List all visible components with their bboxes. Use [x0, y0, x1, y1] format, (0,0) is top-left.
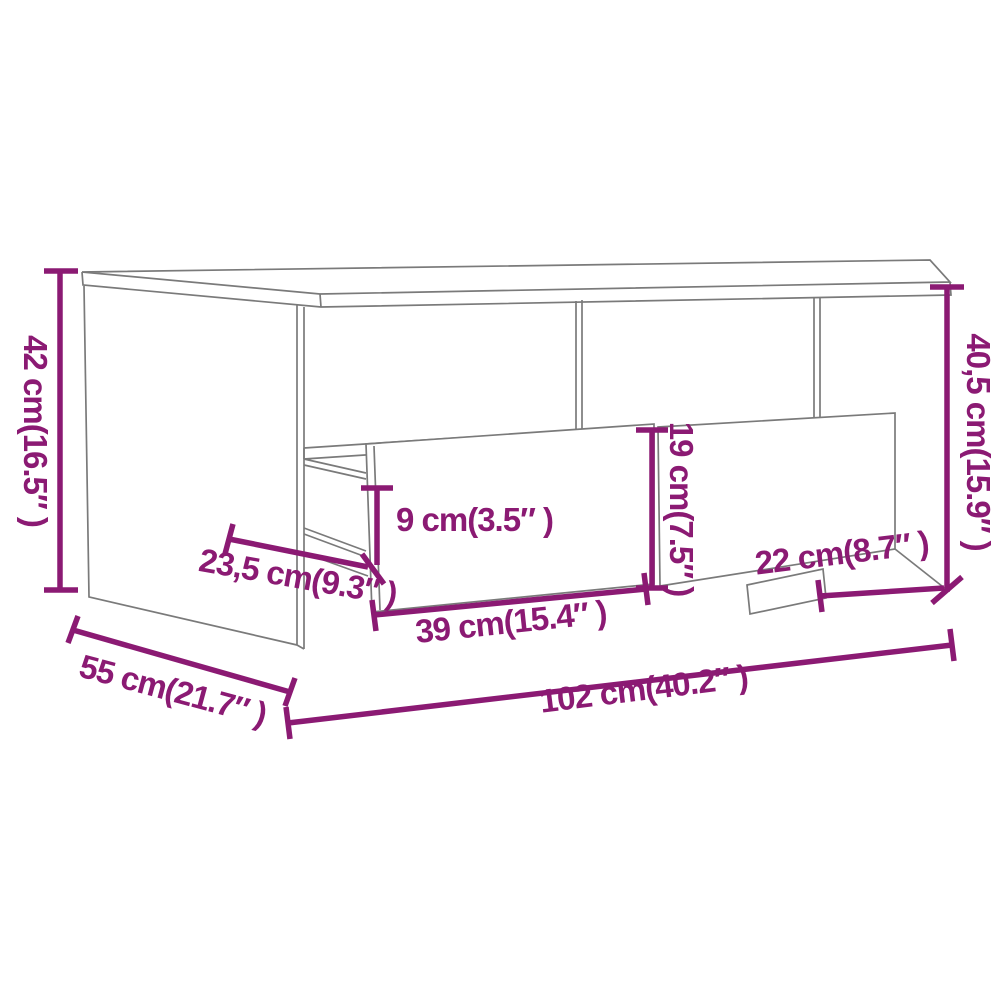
dim-overall-width: 102 cm(40.2″ )	[286, 629, 954, 739]
dim-overall-width-label: 102 cm(40.2″ )	[538, 657, 750, 719]
dim-drawer-opening-height-label: 9 cm(3.5″ )	[396, 501, 553, 538]
dim-overall-height-label: 42 cm(16.5″ )	[17, 335, 54, 527]
dim-side-height-line	[930, 287, 964, 603]
furniture-dimension-diagram: 42 cm(16.5″ ) 40,5 cm(15.9″ ) 19 cm(7.5″…	[0, 0, 1000, 1000]
left-side-panel	[84, 286, 304, 649]
dim-side-height-label: 40,5 cm(15.9″ )	[960, 333, 997, 550]
tabletop-top-face	[82, 260, 950, 294]
shelf-divider	[576, 300, 582, 430]
dim-compartment-width-line	[818, 580, 944, 612]
dim-overall-depth: 55 cm(21.7″ )	[68, 616, 295, 733]
dim-side-height: 40,5 cm(15.9″ )	[930, 287, 997, 603]
diagram-canvas: 42 cm(16.5″ ) 40,5 cm(15.9″ ) 19 cm(7.5″…	[0, 0, 1000, 1000]
dim-overall-height: 42 cm(16.5″ )	[17, 271, 78, 590]
dim-drawer-front-height-label: 19 cm(7.5″ )	[663, 422, 700, 596]
right-side-panel	[814, 297, 820, 436]
